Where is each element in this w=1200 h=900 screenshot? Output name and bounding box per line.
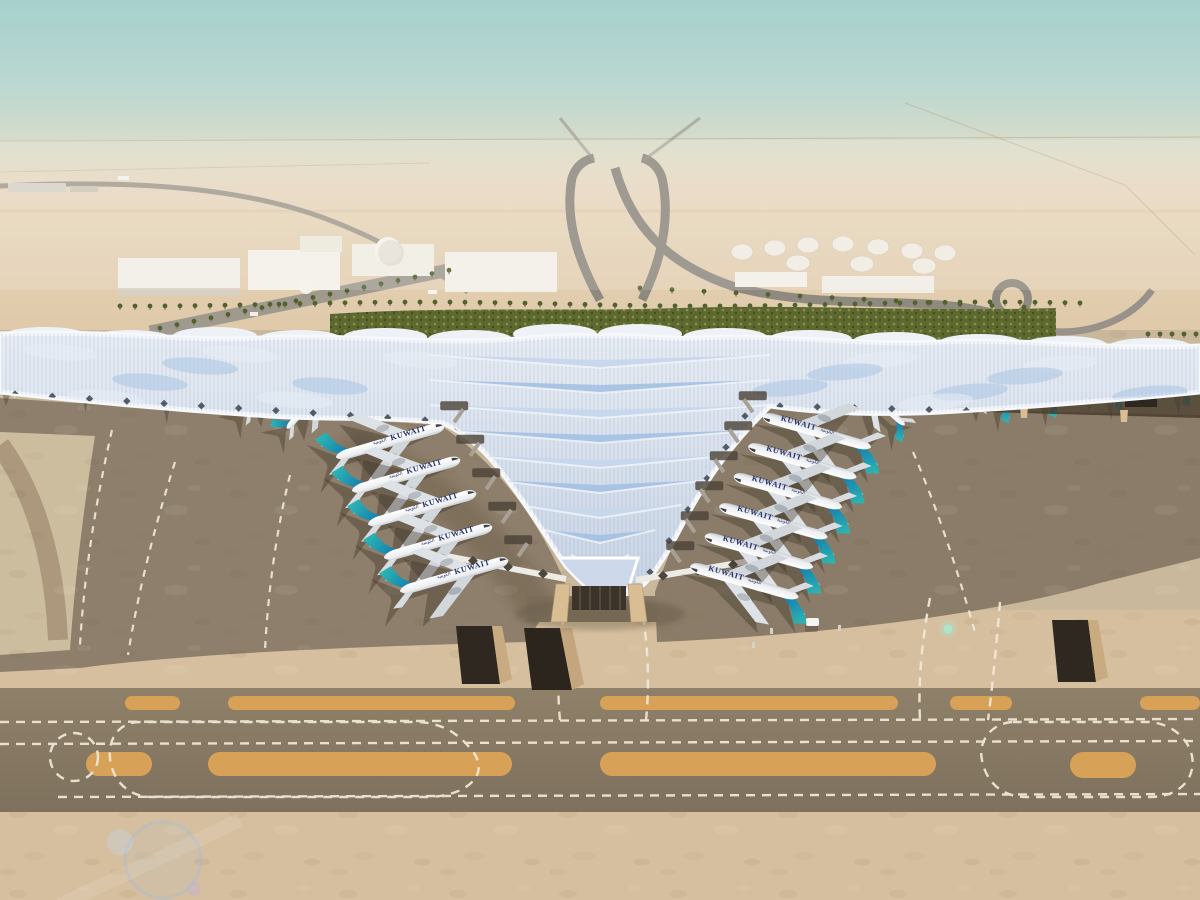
palm-tree <box>243 309 248 314</box>
atmosphere-haze <box>0 140 1200 290</box>
palm-tree <box>343 300 348 305</box>
palm-tree <box>478 300 483 305</box>
palm-tree <box>628 303 633 308</box>
palm-tree <box>328 292 333 297</box>
palm-tree <box>283 302 288 307</box>
gate-equipment <box>681 511 709 520</box>
palm-tree <box>148 304 153 309</box>
palm-tree <box>133 304 138 309</box>
palm-tree <box>433 300 438 305</box>
palm-tree <box>493 300 498 305</box>
palm-tree <box>268 302 273 307</box>
palm-tree <box>209 315 214 320</box>
palm-tree <box>793 303 798 308</box>
palm-tree <box>1033 300 1038 305</box>
gate-equipment <box>724 421 752 430</box>
distant-vehicle <box>428 290 437 294</box>
gate-equipment <box>488 502 516 511</box>
palm-tree <box>313 301 318 306</box>
palm-tree <box>958 302 963 307</box>
gate-equipment <box>739 391 767 400</box>
palm-tree <box>238 303 243 308</box>
palm-tree <box>298 301 303 306</box>
palm-tree <box>418 300 423 305</box>
palm-tree <box>568 302 573 307</box>
palm-tree <box>643 303 648 308</box>
palm-tree <box>808 302 813 307</box>
palm-tree <box>260 305 265 310</box>
palm-tree <box>277 302 282 307</box>
gate-equipment <box>456 435 484 444</box>
palm-tree <box>192 319 197 324</box>
palm-tree <box>294 298 299 303</box>
palm-tree <box>523 301 528 306</box>
palm-tree <box>508 300 513 305</box>
palm-tree <box>973 300 978 305</box>
palm-tree <box>913 300 918 305</box>
palm-tree <box>311 295 316 300</box>
palm-tree <box>553 301 558 306</box>
palm-tree <box>583 302 588 307</box>
palm-tree <box>208 303 213 308</box>
palm-tree <box>673 303 678 308</box>
palm-tree <box>253 302 258 307</box>
palm-tree <box>538 301 543 306</box>
gate-equipment <box>666 541 694 550</box>
gate-equipment <box>472 468 500 477</box>
palm-tree <box>894 298 899 303</box>
palm-tree <box>883 301 888 306</box>
palm-tree <box>1063 300 1068 305</box>
palm-tree <box>388 300 393 305</box>
palm-tree <box>1018 300 1023 305</box>
gate-equipment <box>695 481 723 490</box>
flare-dot <box>944 625 953 634</box>
palm-tree <box>448 300 453 305</box>
palm-tree <box>1078 301 1083 306</box>
distant-vehicle <box>250 312 258 316</box>
palm-tree <box>193 303 198 308</box>
palm-tree <box>1003 300 1008 305</box>
palm-tree <box>734 290 739 295</box>
palm-tree <box>463 300 468 305</box>
palm-tree <box>1048 300 1053 305</box>
palm-tree <box>766 292 771 297</box>
palm-tree <box>688 304 693 309</box>
palm-tree <box>118 304 123 309</box>
palm-tree <box>358 300 363 305</box>
palm-tree <box>598 302 603 307</box>
palm-tree <box>373 300 378 305</box>
palm-tree <box>798 294 803 299</box>
gate-equipment <box>504 535 532 544</box>
gate-equipment <box>440 401 468 410</box>
palm-tree <box>403 300 408 305</box>
palm-tree <box>943 300 948 305</box>
gate-equipment <box>710 451 738 460</box>
palm-tree <box>926 300 931 305</box>
palm-tree <box>990 303 995 308</box>
airport-aerial-rendering: KUWAITKUWAITKUWAITKUWAITKUWAITKUWAITKUWA… <box>0 0 1200 900</box>
palm-tree <box>178 303 183 308</box>
palm-tree <box>868 301 873 306</box>
palm-tree <box>328 301 333 306</box>
palm-tree <box>658 303 663 308</box>
palm-tree <box>158 326 163 331</box>
palm-tree <box>226 312 231 317</box>
palm-tree <box>613 303 618 308</box>
palm-tree <box>223 303 228 308</box>
palm-tree <box>853 301 858 306</box>
palm-tree <box>830 295 835 300</box>
palm-tree <box>838 302 843 307</box>
palm-tree <box>862 297 867 302</box>
van <box>806 618 819 626</box>
palm-tree <box>175 322 180 327</box>
palm-tree <box>163 304 168 309</box>
palm-tree <box>823 302 828 307</box>
